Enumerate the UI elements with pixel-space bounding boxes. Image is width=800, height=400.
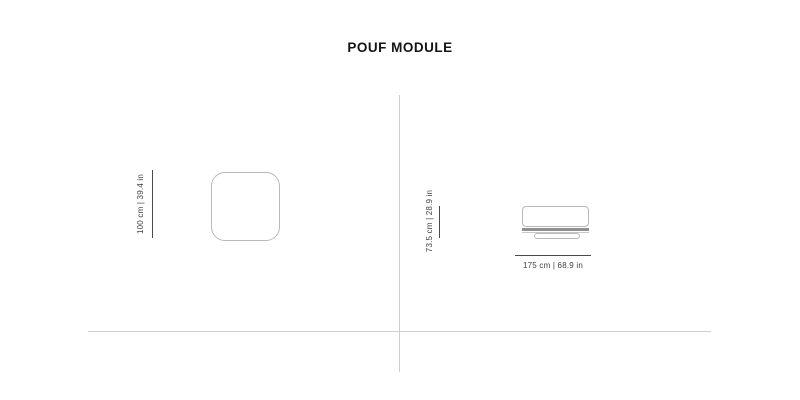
side-view-width-dimension-label: 175 cm | 68.9 in — [503, 261, 603, 271]
side-view-height-dimension-label: 73.5 cm | 28.9 in — [425, 181, 435, 261]
top-view-height-dimension-line — [152, 170, 153, 238]
top-view-height-dimension-label: 100 cm | 39.4 in — [136, 164, 146, 244]
pouf-side-view-base-outline — [534, 233, 580, 239]
side-view-width-dimension-line — [515, 255, 591, 256]
horizontal-divider-line — [88, 331, 711, 332]
spec-sheet: POUF MODULE 100 cm | 39.4 in 73.5 cm | 2… — [0, 0, 800, 400]
pouf-top-view-outline — [211, 172, 280, 241]
page-title: POUF MODULE — [0, 40, 800, 55]
pouf-side-view-body-outline — [522, 206, 589, 227]
side-view-height-dimension-line — [439, 206, 440, 238]
pouf-side-view-seat-band — [522, 228, 589, 231]
